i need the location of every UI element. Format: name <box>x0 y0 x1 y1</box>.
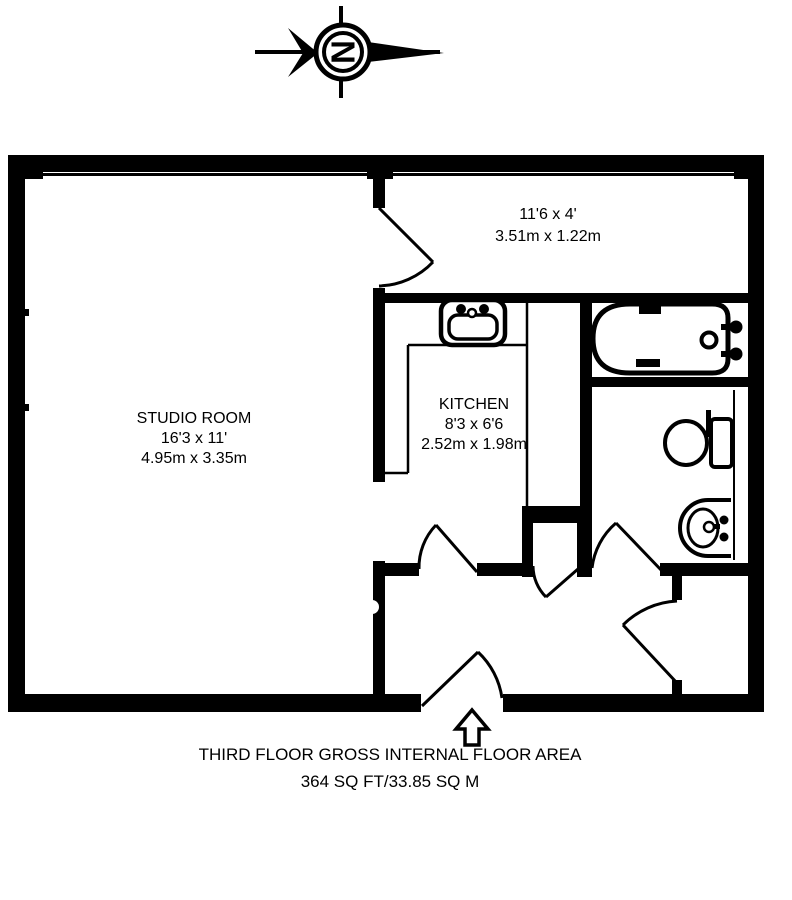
kitchen-dimensions-imperial: 8'3 x 6'6 <box>421 415 527 435</box>
door-studio-hallway <box>379 208 433 286</box>
door-store <box>623 601 677 683</box>
floor-area-caption: THIRD FLOOR GROSS INTERNAL FLOOR AREA 36… <box>199 741 582 795</box>
floor-plan-page: N 11'6 x 4' 3.51m x 1.22m STUDIO ROOM 16… <box>0 0 792 900</box>
kitchen-dimensions-metric: 2.52m x 1.98m <box>421 435 527 455</box>
studio-room-name: STUDIO ROOM <box>137 409 252 429</box>
kitchen-name: KITCHEN <box>421 395 527 415</box>
hallway-dimensions-metric: 3.51m x 1.22m <box>495 226 601 248</box>
hallway-label: 11'6 x 4' 3.51m x 1.22m <box>495 204 601 248</box>
outer-walls <box>8 155 764 712</box>
door-closet <box>533 566 578 597</box>
floor-area-title: THIRD FLOOR GROSS INTERNAL FLOOR AREA <box>199 741 582 768</box>
studio-dimensions-metric: 4.95m x 3.35m <box>137 449 252 469</box>
wash-basin-icon <box>680 500 731 556</box>
door-kitchen <box>419 525 477 572</box>
wall-notch <box>365 600 379 614</box>
floor-area-value: 364 SQ FT/33.85 SQ M <box>199 768 582 795</box>
toilet-icon <box>665 410 732 467</box>
studio-dimensions-imperial: 16'3 x 11' <box>137 429 252 449</box>
entrance-arrow-icon <box>456 710 488 745</box>
door-bathroom <box>592 523 663 572</box>
kitchen-sink-icon <box>441 300 505 345</box>
hallway-dimensions-imperial: 11'6 x 4' <box>495 204 601 226</box>
bathtub-icon <box>593 304 743 373</box>
studio-room-label: STUDIO ROOM 16'3 x 11' 4.95m x 3.35m <box>137 409 252 469</box>
window-sill-line <box>43 173 740 176</box>
kitchen-label: KITCHEN 8'3 x 6'6 2.52m x 1.98m <box>421 395 527 455</box>
compass-north-letter: N <box>327 40 360 64</box>
